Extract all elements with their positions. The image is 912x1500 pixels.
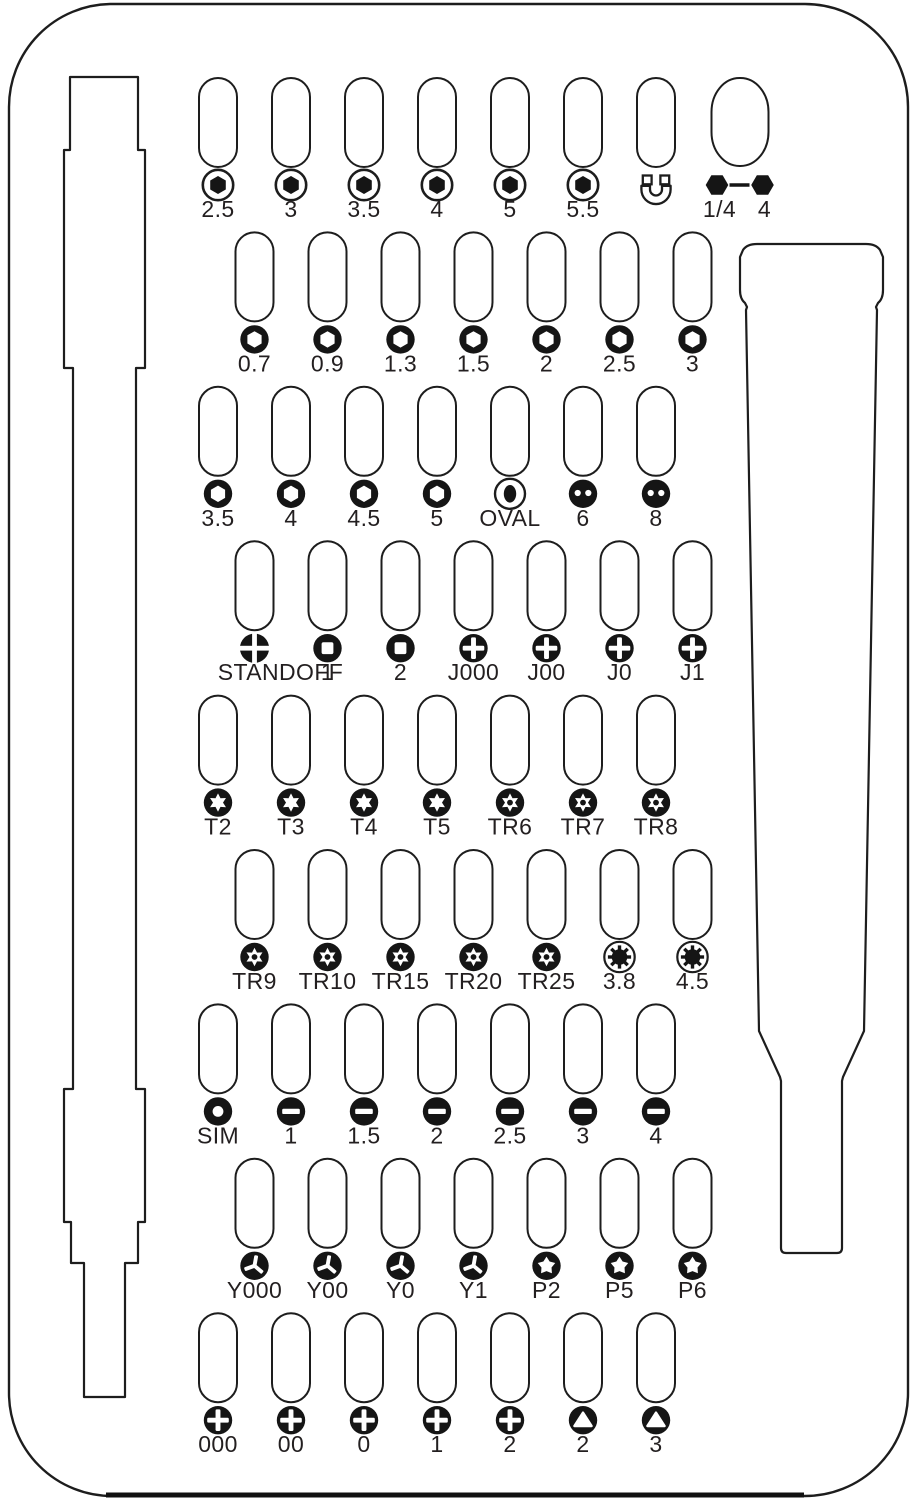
bit-label: 1.5 bbox=[347, 1122, 380, 1148]
bit-label: T4 bbox=[350, 814, 378, 840]
bit-column: J000 bbox=[448, 541, 499, 685]
bit-slot bbox=[637, 387, 675, 476]
bit-slot bbox=[637, 1313, 675, 1402]
bit-slot bbox=[455, 541, 493, 630]
bit-slot bbox=[236, 232, 274, 321]
pentalobe-icon bbox=[678, 1252, 706, 1280]
bit-label: 2.5 bbox=[201, 196, 234, 222]
bit-slot bbox=[382, 541, 420, 630]
bit-label: 0.7 bbox=[238, 350, 271, 376]
torx-security-icon bbox=[532, 943, 560, 971]
bit-slot bbox=[418, 1313, 456, 1402]
bit-slot bbox=[564, 387, 602, 476]
bit-slot bbox=[272, 696, 310, 785]
bit-slot bbox=[564, 1004, 602, 1093]
bit-slot bbox=[528, 850, 566, 939]
bit-slot bbox=[712, 78, 769, 166]
bit-label: Y1 bbox=[459, 1277, 488, 1303]
torx-security-icon bbox=[313, 943, 341, 971]
bit-label: 4 bbox=[430, 196, 443, 222]
bit-label: 3.8 bbox=[603, 968, 636, 994]
phillips-icon bbox=[605, 634, 633, 662]
phillips-icon bbox=[277, 1406, 305, 1434]
bit-slot bbox=[637, 696, 675, 785]
tri-point-y-icon bbox=[459, 1252, 487, 1280]
bit-slot bbox=[455, 1159, 493, 1248]
bit-column: 3.8 bbox=[601, 850, 639, 994]
bit-slot bbox=[418, 696, 456, 785]
bit-label: J1 bbox=[680, 659, 705, 685]
spanner-icon bbox=[569, 480, 597, 508]
bit-slot bbox=[236, 850, 274, 939]
bit-slot bbox=[309, 850, 347, 939]
bit-label: P5 bbox=[605, 1277, 634, 1303]
phillips-icon bbox=[496, 1406, 524, 1434]
bit-column: Y0 bbox=[382, 1159, 420, 1303]
bit-label: 1 bbox=[321, 659, 334, 685]
bit-label: 3.5 bbox=[201, 505, 234, 531]
torx-security-icon bbox=[642, 788, 670, 816]
tri-point-y-icon bbox=[313, 1252, 341, 1280]
bit-column: P2 bbox=[528, 1159, 566, 1303]
flathead-icon bbox=[350, 1097, 378, 1125]
bit-slot bbox=[674, 541, 712, 630]
bit-slot bbox=[382, 1159, 420, 1248]
bit-slot bbox=[528, 1159, 566, 1248]
bit-slot bbox=[345, 1313, 383, 1402]
bit-label: 2.5 bbox=[603, 350, 636, 376]
bit-label: 1.5 bbox=[457, 350, 490, 376]
bit-slot bbox=[272, 1313, 310, 1402]
flathead-icon bbox=[496, 1097, 524, 1125]
flathead-icon bbox=[569, 1097, 597, 1125]
bit-label: 1.3 bbox=[384, 350, 417, 376]
bit-column: 0.7 bbox=[236, 232, 274, 376]
bit-column: TR7 bbox=[561, 696, 606, 840]
torx-security-icon bbox=[386, 943, 414, 971]
triangle-icon bbox=[642, 1406, 670, 1434]
spanner-icon bbox=[642, 480, 670, 508]
bit-label: 2 bbox=[576, 1431, 589, 1457]
flathead-icon bbox=[642, 1097, 670, 1125]
phillips-icon bbox=[532, 634, 560, 662]
bit-slot bbox=[418, 78, 456, 167]
bit-label: P6 bbox=[678, 1277, 707, 1303]
bit-slot bbox=[382, 232, 420, 321]
bit-slot bbox=[345, 1004, 383, 1093]
bit-column: Y00 bbox=[306, 1159, 348, 1303]
bit-label: 3 bbox=[649, 1431, 662, 1457]
bit-label: J000 bbox=[448, 659, 499, 685]
bit-slot bbox=[601, 1159, 639, 1248]
bit-slot bbox=[199, 387, 237, 476]
bit-label: TR8 bbox=[634, 814, 679, 840]
bit-label: 0.9 bbox=[311, 350, 344, 376]
bit-slot bbox=[236, 1159, 274, 1248]
bit-slot bbox=[674, 850, 712, 939]
bit-slot bbox=[199, 1004, 237, 1093]
bit-label: T3 bbox=[277, 814, 305, 840]
bit-slot bbox=[491, 387, 529, 476]
hex-icon bbox=[678, 325, 706, 353]
bit-slot bbox=[418, 1004, 456, 1093]
torx-security-icon bbox=[569, 788, 597, 816]
bit-label: TR15 bbox=[372, 968, 430, 994]
hex-icon bbox=[459, 325, 487, 353]
bit-label: 3 bbox=[576, 1122, 589, 1148]
bit-label: J00 bbox=[527, 659, 565, 685]
bit-kit-tray: 2.533.5455.51/440.70.91.31.522.533.544.5… bbox=[0, 0, 912, 1500]
bit-column: T5 bbox=[418, 696, 456, 840]
bit-column: T3 bbox=[272, 696, 310, 840]
torx-security-icon bbox=[459, 943, 487, 971]
bit-slot bbox=[309, 232, 347, 321]
bit-column: TR9 bbox=[232, 850, 277, 994]
bit-label: TR9 bbox=[232, 968, 277, 994]
bit-slot bbox=[199, 696, 237, 785]
bit-slot bbox=[309, 1159, 347, 1248]
bit-label: Y0 bbox=[386, 1277, 415, 1303]
bit-label: 5.5 bbox=[566, 196, 599, 222]
hex-icon bbox=[277, 480, 305, 508]
phillips-icon bbox=[678, 634, 706, 662]
bit-label: T2 bbox=[204, 814, 232, 840]
bit-label: 2 bbox=[394, 659, 407, 685]
bit-slot bbox=[674, 232, 712, 321]
tri-point-y-icon bbox=[386, 1252, 414, 1280]
hex-icon bbox=[204, 480, 232, 508]
bit-column: 4.5 bbox=[674, 850, 712, 994]
bit-slot bbox=[272, 78, 310, 167]
bit-slot bbox=[272, 1004, 310, 1093]
bit-label: TR7 bbox=[561, 814, 606, 840]
bit-slot bbox=[491, 1313, 529, 1402]
bit-slot bbox=[345, 78, 383, 167]
bit-label: J0 bbox=[607, 659, 632, 685]
flathead-icon bbox=[423, 1097, 451, 1125]
bit-label: 4.5 bbox=[347, 505, 380, 531]
bit-slot bbox=[674, 1159, 712, 1248]
bit-slot bbox=[564, 78, 602, 167]
bit-slot bbox=[272, 387, 310, 476]
bit-slot bbox=[199, 1313, 237, 1402]
bit-column: T4 bbox=[345, 696, 383, 840]
bit-slot bbox=[528, 541, 566, 630]
bit-label: 3.5 bbox=[347, 196, 380, 222]
bit-label: 8 bbox=[649, 505, 662, 531]
bit-column: J00 bbox=[527, 541, 565, 685]
bit-label: 2 bbox=[503, 1431, 516, 1457]
bit-column: Y000 bbox=[227, 1159, 282, 1303]
bit-slot bbox=[236, 541, 274, 630]
bit-label: 5 bbox=[430, 505, 443, 531]
bit-label: 00 bbox=[278, 1431, 304, 1457]
bit-label: Y000 bbox=[227, 1277, 282, 1303]
hex-icon bbox=[423, 480, 451, 508]
bit-column: T2 bbox=[199, 696, 237, 840]
bit-label: 1 bbox=[284, 1122, 297, 1148]
bit-slot bbox=[455, 850, 493, 939]
bit-column: 1.5 bbox=[455, 232, 493, 376]
bit-label: T5 bbox=[423, 814, 451, 840]
bit-slot bbox=[528, 232, 566, 321]
bit-label: 0 bbox=[357, 1431, 370, 1457]
bit-column: 1.5 bbox=[345, 1004, 383, 1148]
bit-label: 6 bbox=[576, 505, 589, 531]
torx-icon bbox=[350, 788, 378, 816]
bit-slot bbox=[601, 850, 639, 939]
bit-slot bbox=[601, 541, 639, 630]
hex-icon bbox=[605, 325, 633, 353]
sim-icon bbox=[204, 1097, 232, 1125]
bit-label: 3 bbox=[284, 196, 297, 222]
bit-slot bbox=[601, 232, 639, 321]
bit-column: SIM bbox=[197, 1004, 239, 1148]
bit-label: 1/4 bbox=[703, 196, 736, 222]
bit-column: 2.5 bbox=[491, 1004, 529, 1148]
bit-slot bbox=[199, 78, 237, 167]
torx-icon bbox=[277, 788, 305, 816]
phillips-icon bbox=[350, 1406, 378, 1434]
bit-column: TR8 bbox=[634, 696, 679, 840]
bit-label: 2 bbox=[430, 1122, 443, 1148]
bit-column: TR6 bbox=[488, 696, 533, 840]
bit-column: 5.5 bbox=[564, 78, 602, 222]
bit-label: TR20 bbox=[445, 968, 503, 994]
bit-slot bbox=[491, 696, 529, 785]
bit-slot bbox=[564, 696, 602, 785]
tri-point-y-icon bbox=[240, 1252, 268, 1280]
bit-column: P6 bbox=[674, 1159, 712, 1303]
hex-icon bbox=[532, 325, 560, 353]
phillips-icon bbox=[459, 634, 487, 662]
extension-shaft-cutout bbox=[64, 77, 145, 1397]
pentalobe-icon bbox=[532, 1252, 560, 1280]
bit-slot bbox=[382, 850, 420, 939]
bit-column: 0.9 bbox=[309, 232, 347, 376]
bit-label: 4 bbox=[758, 196, 771, 222]
bit-label: 3 bbox=[686, 350, 699, 376]
bit-slot bbox=[345, 387, 383, 476]
bit-kit-tray-diagram: 2.533.5455.51/440.70.91.31.522.533.544.5… bbox=[0, 0, 912, 1500]
bit-column: Y1 bbox=[455, 1159, 493, 1303]
bit-label: 4.5 bbox=[676, 968, 709, 994]
bit-column: P5 bbox=[601, 1159, 639, 1303]
bit-slot bbox=[491, 78, 529, 167]
bit-column: 2.5 bbox=[601, 232, 639, 376]
flathead-icon bbox=[277, 1097, 305, 1125]
bit-label: 000 bbox=[198, 1431, 238, 1457]
bit-column: 1.3 bbox=[382, 232, 420, 376]
bit-label: Y00 bbox=[306, 1277, 348, 1303]
torx-icon bbox=[204, 788, 232, 816]
bit-label: 5 bbox=[503, 196, 516, 222]
bit-label: 2 bbox=[540, 350, 553, 376]
bit-label: SIM bbox=[197, 1122, 239, 1148]
triangle-icon bbox=[569, 1406, 597, 1434]
bit-column: 3.5 bbox=[199, 387, 237, 531]
hex-icon bbox=[386, 325, 414, 353]
bit-label: 1 bbox=[430, 1431, 443, 1457]
torx-icon bbox=[423, 788, 451, 816]
bit-label: TR6 bbox=[488, 814, 533, 840]
bit-column: 2.5 bbox=[199, 78, 237, 222]
phillips-icon bbox=[423, 1406, 451, 1434]
bit-label: 4 bbox=[284, 505, 297, 531]
hex-icon bbox=[350, 480, 378, 508]
torx-security-icon bbox=[496, 788, 524, 816]
bit-label: TR10 bbox=[299, 968, 357, 994]
bit-slot bbox=[637, 1004, 675, 1093]
hex-icon bbox=[313, 325, 341, 353]
hex-icon bbox=[240, 325, 268, 353]
square-icon bbox=[386, 634, 414, 662]
bit-column: 3.5 bbox=[345, 78, 383, 222]
phillips-icon bbox=[204, 1406, 232, 1434]
bit-label: P2 bbox=[532, 1277, 561, 1303]
bit-label: TR25 bbox=[518, 968, 576, 994]
bit-label: 2.5 bbox=[493, 1122, 526, 1148]
bit-slot bbox=[564, 1313, 602, 1402]
bit-column: 4.5 bbox=[345, 387, 383, 531]
bit-column: 000 bbox=[198, 1313, 238, 1457]
bit-slot bbox=[637, 78, 675, 167]
bit-slot bbox=[455, 232, 493, 321]
torx-security-icon bbox=[240, 943, 268, 971]
bit-label: OVAL bbox=[479, 505, 540, 531]
bit-slot bbox=[345, 696, 383, 785]
bit-slot bbox=[491, 1004, 529, 1093]
bit-label: 4 bbox=[649, 1122, 662, 1148]
bit-slot bbox=[418, 387, 456, 476]
square-icon bbox=[313, 634, 341, 662]
bit-slot bbox=[309, 541, 347, 630]
pentalobe-icon bbox=[605, 1252, 633, 1280]
